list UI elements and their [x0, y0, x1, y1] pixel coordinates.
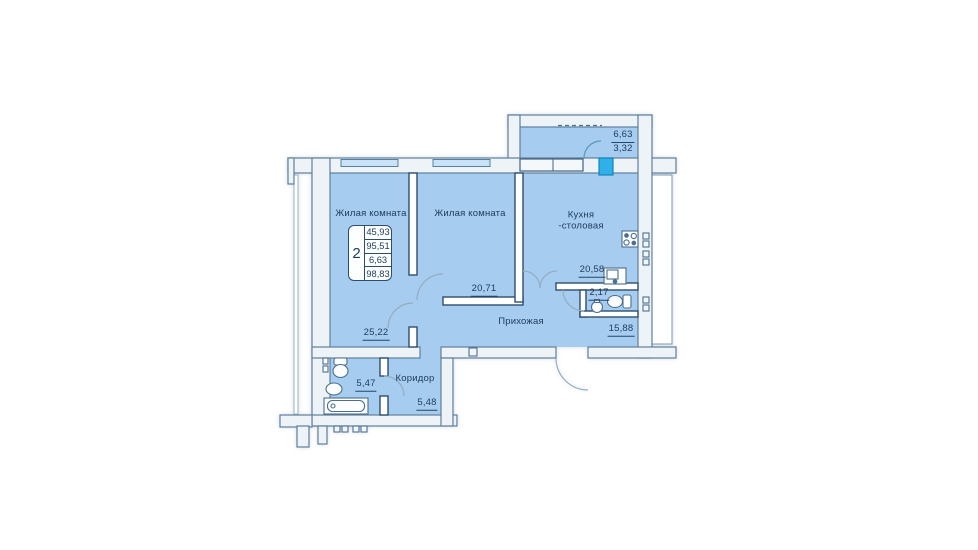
bathtub-drain — [331, 404, 335, 408]
neighbor-wall-stub-bottom-left — [280, 415, 312, 427]
vent-icon — [342, 426, 348, 432]
room-label-hall: Прихожая — [498, 317, 544, 328]
partition-rooms-divider-stub — [409, 327, 417, 347]
neighbor-wall-stub-vertical2 — [318, 426, 327, 444]
summary-apartment-area: 95,51 — [365, 240, 391, 254]
bottom-wall-middle-segment — [441, 347, 556, 358]
room-label-kitchen: Кухня -столовая — [558, 211, 603, 232]
stove-burner — [632, 241, 636, 245]
kitchen-tap — [613, 280, 617, 284]
vent-icon — [361, 426, 367, 432]
balcony-wall-left — [508, 115, 520, 160]
stove-burner — [631, 233, 636, 238]
room-label-living1: Жилая комната — [335, 209, 406, 220]
vent-icon — [643, 259, 649, 265]
stove-burner — [625, 234, 629, 238]
summary-values: 45,93 95,51 6,63 98,83 — [365, 226, 391, 280]
vent-icon — [643, 297, 649, 303]
partition-bath-divider-upper — [380, 358, 388, 376]
window-living1 — [341, 160, 398, 167]
bottom-wall-right-segment — [588, 347, 676, 358]
area-living1: 25,22 — [363, 328, 390, 341]
stove-burner — [624, 240, 629, 245]
partition-living2-bottom — [443, 297, 523, 305]
balcony-door — [599, 158, 613, 175]
exterior-wall-top-left-cap — [288, 158, 294, 184]
balcony-area-counted: 3,32 — [613, 143, 632, 155]
vent-icon — [643, 305, 649, 311]
kitchen-sink-basin — [607, 270, 618, 279]
neighbor-area-right — [652, 175, 672, 344]
neighbor-wall-left-line — [294, 175, 298, 414]
kitchen-label-line1: Кухня — [558, 211, 603, 222]
wall-marker — [469, 348, 477, 356]
balcony-area-full: 6,63 — [611, 130, 634, 143]
area-kitchen: 20,58 — [579, 265, 606, 278]
room-label-living2: Жилая комната — [434, 209, 505, 220]
summary-total-area: 98,83 — [365, 267, 391, 280]
summary-living-area: 45,93 — [365, 226, 391, 240]
floor-plan-page: Жилая комната Жилая комната Кухня -столо… — [0, 0, 978, 550]
balcony-area-fraction: 6,63 3,32 — [611, 130, 634, 154]
area-wc: 2,17 — [588, 288, 609, 301]
round-sink-icon — [592, 302, 603, 313]
towel-rail-icon — [323, 366, 328, 372]
vent-icon — [643, 251, 649, 257]
vent-icon — [334, 426, 340, 432]
towel-rail-icon — [323, 358, 328, 364]
floor-plan-drawing — [0, 0, 978, 550]
window-kitchen-under-balcony — [520, 159, 583, 171]
kitchen-label-line2: -столовая — [558, 221, 603, 232]
summary-rooms-count: 2 — [349, 226, 365, 280]
summary-balcony-area: 6,63 — [365, 254, 391, 268]
washbasin-icon — [326, 383, 342, 395]
vent-icon — [643, 241, 649, 247]
partition-living2-right — [515, 173, 523, 302]
area-hall: 15,88 — [608, 324, 635, 337]
bottom-wall-left-segment — [312, 347, 420, 358]
vent-icon — [353, 426, 359, 432]
vent-icon — [643, 233, 649, 239]
toilet-bowl-icon — [333, 365, 348, 378]
area-corridor: 5,48 — [416, 398, 437, 411]
annex-wall-right — [441, 358, 453, 426]
toilet-bowl-icon — [608, 296, 623, 308]
area-bathroom: 5,47 — [355, 379, 376, 392]
partition-bath-divider-lower — [380, 396, 388, 415]
area-living2: 20,71 — [471, 284, 498, 297]
annex-wall-bottom — [312, 415, 457, 426]
door-arc-entrance — [556, 358, 588, 390]
toilet-tank-icon — [623, 295, 631, 308]
apartment-summary-table: 2 45,93 95,51 6,63 98,83 — [348, 225, 392, 281]
window-living2 — [433, 160, 490, 167]
partition-rooms-divider-upper — [409, 173, 417, 275]
neighbor-wall-stub-vertical1 — [297, 426, 309, 447]
room-label-corridor: Коридор — [396, 374, 435, 385]
partition-wc-bottom — [580, 311, 638, 317]
